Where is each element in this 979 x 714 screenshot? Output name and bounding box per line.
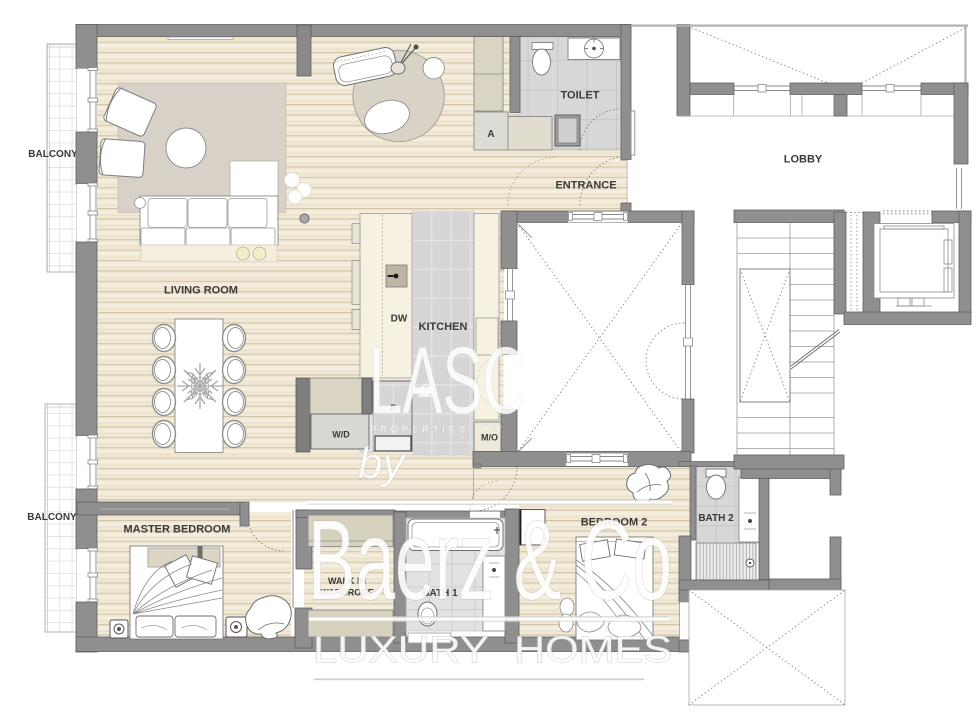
svg-text:LASC: LASC [369, 328, 526, 434]
svg-text:BALCONY: BALCONY [27, 512, 77, 523]
svg-text:MASTER BEDROOM: MASTER BEDROOM [124, 524, 231, 536]
svg-text:W/D: W/D [332, 430, 350, 440]
svg-text:BATH 2: BATH 2 [698, 513, 734, 524]
svg-text:PROPERTIES: PROPERTIES [370, 425, 469, 436]
svg-text:TOILET: TOILET [561, 90, 600, 102]
svg-text:A: A [487, 129, 494, 140]
svg-text:LIVING ROOM: LIVING ROOM [164, 285, 238, 297]
svg-text:ENTRANCE: ENTRANCE [555, 180, 616, 192]
svg-text:LUXURY: LUXURY [313, 629, 489, 670]
svg-text:by: by [358, 439, 407, 488]
svg-text:DW: DW [391, 314, 408, 325]
svg-text:Baerz & Co: Baerz & Co [308, 497, 672, 623]
svg-text:BY: BY [484, 425, 507, 436]
svg-text:HOMES: HOMES [514, 629, 672, 670]
svg-text:BALCONY: BALCONY [28, 149, 78, 160]
svg-text:LOBBY: LOBBY [784, 154, 823, 166]
